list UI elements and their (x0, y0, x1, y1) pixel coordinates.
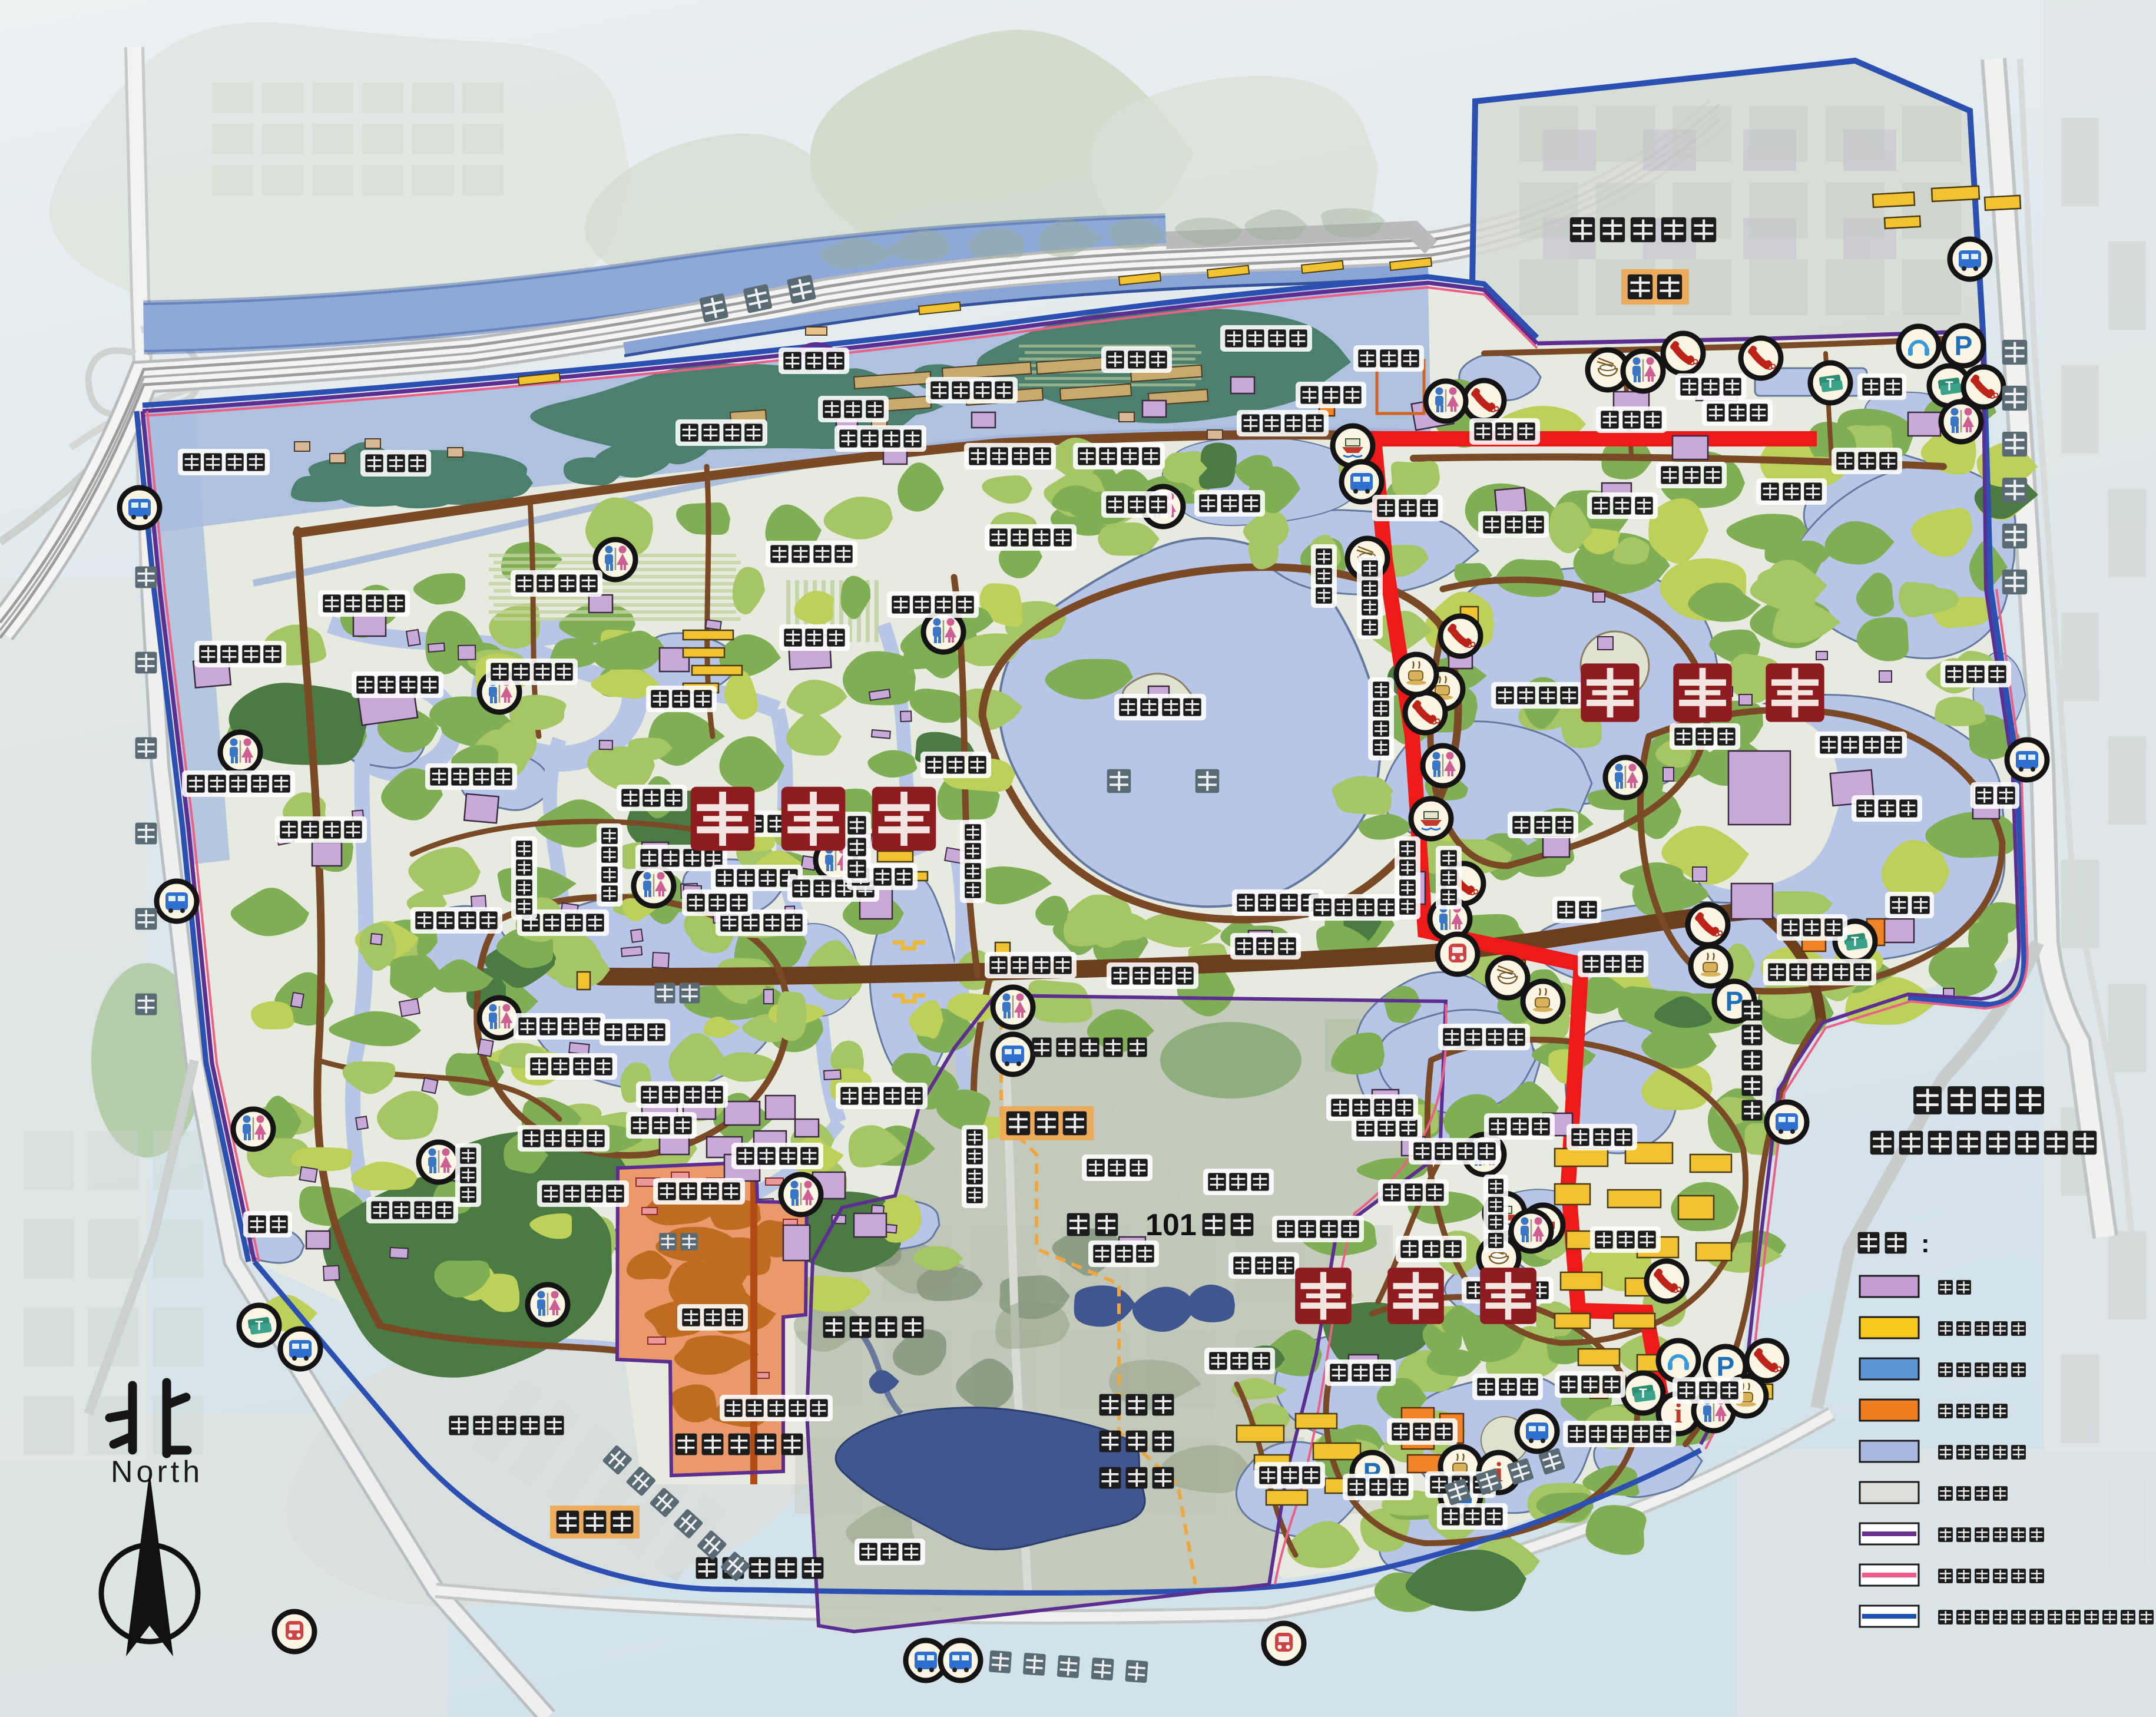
svg-text:101: 101 (1145, 1208, 1197, 1242)
svg-text:T: T (1826, 376, 1834, 391)
svg-text:T: T (1639, 1386, 1647, 1401)
svg-text:T: T (255, 1318, 263, 1333)
svg-text:P: P (1726, 986, 1744, 1017)
svg-text:P: P (1955, 330, 1973, 361)
svg-text:North: North (111, 1455, 203, 1489)
svg-text::: : (1921, 1229, 1930, 1258)
svg-text:T: T (1945, 379, 1953, 393)
svg-text:T: T (1851, 934, 1859, 949)
